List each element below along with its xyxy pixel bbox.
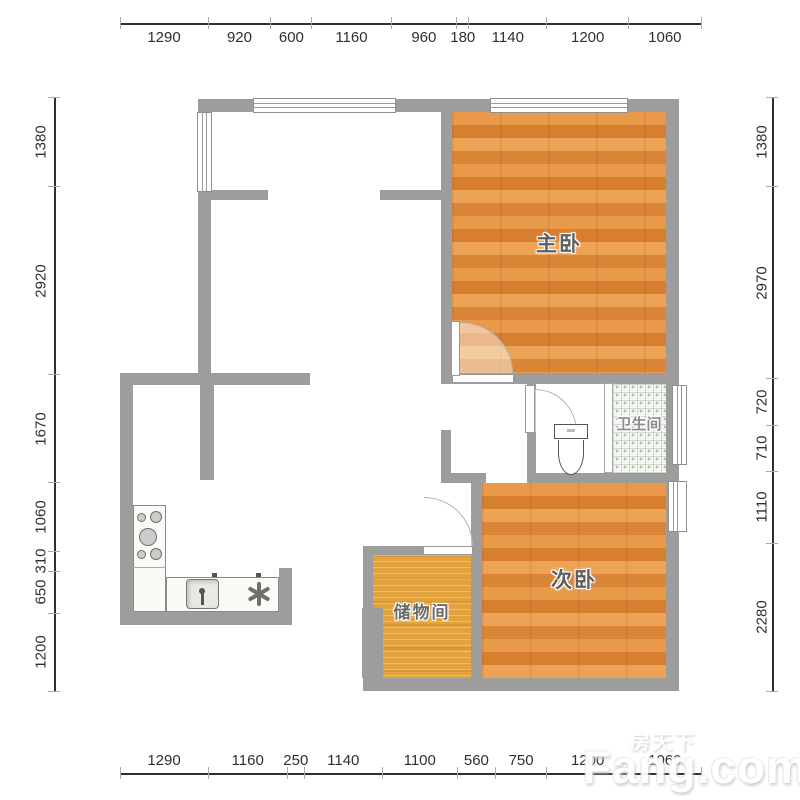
dimension-segment: 1670 <box>24 375 58 483</box>
dimension-chain-left: 13802920167010603106501200 <box>24 97 58 691</box>
dimension-segment: 750 <box>496 744 547 780</box>
dimension-segment: 1200 <box>24 613 58 691</box>
dimension-segment: 1160 <box>312 14 391 50</box>
dimension-value: 1160 <box>335 29 367 46</box>
dimension-chain-right: 1380297072071011102280 <box>745 97 779 691</box>
dimension-value: 1380 <box>33 125 50 158</box>
dimension-value: 1670 <box>33 412 50 445</box>
dimension-segment: 560 <box>457 744 495 780</box>
master-bedroom-door-threshold <box>452 374 514 383</box>
dimension-value: 1140 <box>492 29 524 46</box>
wall-stub-left <box>211 190 268 200</box>
sink-faucet-stem <box>201 593 204 605</box>
dimension-value: 2280 <box>754 600 771 633</box>
master-bedroom-label: 主卧 <box>452 228 666 258</box>
dimension-segment: 1110 <box>745 471 779 543</box>
dimension-value: 960 <box>411 29 436 46</box>
window-left-living <box>197 112 212 192</box>
dimension-value: 1290 <box>147 752 180 769</box>
window-right-bathroom <box>672 385 687 465</box>
dimension-segment: 2970 <box>745 186 779 378</box>
stove-burner-icon <box>137 513 146 522</box>
dimension-value: 1060 <box>33 500 50 533</box>
wall-kitchen-west <box>120 373 133 625</box>
wall-kitchen-east <box>200 373 214 480</box>
dimension-segment: 1100 <box>382 744 457 780</box>
dimension-segment: 1380 <box>745 97 779 186</box>
wall-second-bedroom-west <box>471 473 482 678</box>
wall-living-divider <box>120 373 310 385</box>
window-top-living <box>253 98 396 113</box>
dimension-segment: 960 <box>391 14 457 50</box>
dimension-segment: 2920 <box>24 186 58 375</box>
dimension-value: 1140 <box>327 752 359 769</box>
dimension-value: 1110 <box>754 492 771 523</box>
dimension-value: 1160 <box>232 752 264 769</box>
dimension-value: 2920 <box>33 264 50 297</box>
dimension-segment: 2280 <box>745 543 779 691</box>
bathroom-door-leaf <box>525 385 535 433</box>
fang-watermark: 房天下 Fang.com <box>583 740 800 794</box>
dimension-segment: 920 <box>208 14 271 50</box>
dimension-value: 1290 <box>147 29 180 46</box>
dimension-segment: 1290 <box>120 744 208 780</box>
wall-exterior-bottom <box>363 678 679 691</box>
dimension-segment: 600 <box>271 14 312 50</box>
drain-asterisk-icon <box>247 582 271 606</box>
stove-burner-icon <box>150 548 162 560</box>
dimension-segment: 720 <box>745 379 779 426</box>
dimension-value: 1060 <box>648 29 681 46</box>
window-top-master <box>490 98 628 113</box>
dimension-segment: 1380 <box>24 97 58 186</box>
toilet-button <box>567 429 575 432</box>
dimension-value: 1380 <box>754 125 771 158</box>
stove-burner-icon <box>137 550 146 559</box>
dimension-value: 600 <box>279 29 304 46</box>
wall-second-bedroom-north-b <box>527 473 666 483</box>
dimension-value: 750 <box>509 752 534 769</box>
dimension-value: 2970 <box>754 266 771 299</box>
dimension-segment: 1290 <box>120 14 208 50</box>
counter-mark <box>256 573 261 577</box>
dimension-value: 1200 <box>571 29 604 46</box>
storage-door-threshold <box>423 546 473 555</box>
dimension-value: 1200 <box>33 636 50 669</box>
dimension-segment: 710 <box>745 425 779 471</box>
dimension-segment: 650 <box>24 571 58 613</box>
dimension-segment: 1200 <box>547 14 629 50</box>
wall-kitchen-south <box>120 612 292 625</box>
dimension-chain-top: 12909206001160960180114012001060 <box>120 14 701 50</box>
window-right-second-bedroom <box>668 481 687 532</box>
storage-door-swing <box>424 497 473 546</box>
second-bedroom-label: 次卧 <box>482 564 666 594</box>
storage-room-label: 储物间 <box>373 598 471 623</box>
dimension-segment: 1060 <box>629 14 701 50</box>
counter-mark <box>212 573 217 577</box>
wall-counter-pillar <box>279 568 292 625</box>
stove-burner-icon <box>150 511 162 523</box>
toilet-tank <box>554 424 588 439</box>
stove-burner-icon <box>139 528 157 546</box>
dimension-segment: 310 <box>24 551 58 571</box>
dimension-value: 1100 <box>404 752 436 769</box>
dimension-segment: 250 <box>287 744 304 780</box>
dimension-value: 710 <box>754 436 771 461</box>
dimension-value: 310 <box>33 549 50 574</box>
bathroom-label: 卫生间 <box>607 413 671 434</box>
dimension-value: 650 <box>33 580 50 605</box>
dimension-segment: 1160 <box>208 744 287 780</box>
master-bedroom-door-leaf <box>451 321 460 376</box>
dimension-segment: 1140 <box>469 14 547 50</box>
dimension-value: 720 <box>754 390 771 415</box>
fang-watermark-chinese: 房天下 <box>630 726 696 755</box>
dimension-segment: 180 <box>457 14 469 50</box>
dimension-segment: 1060 <box>24 483 58 552</box>
stove-edge-line <box>133 567 166 568</box>
dimension-segment: 1140 <box>304 744 382 780</box>
dimension-value: 920 <box>227 29 252 46</box>
dimension-value: 560 <box>464 752 489 769</box>
